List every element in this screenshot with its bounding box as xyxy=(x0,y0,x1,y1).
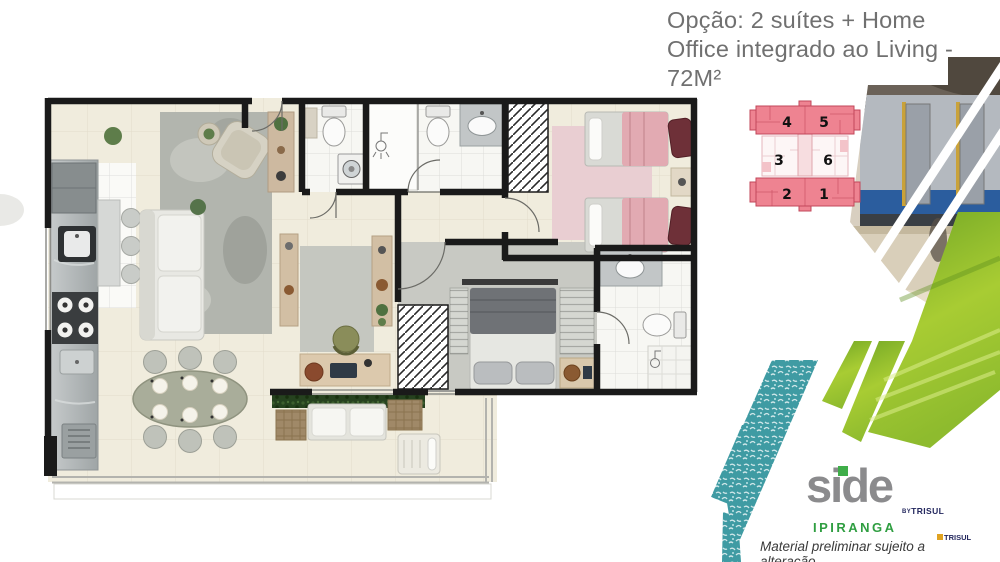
disclaimer-text: Material preliminar sujeito a alteração xyxy=(760,539,982,562)
side-logo-text: side xyxy=(806,459,892,512)
woven-mat xyxy=(388,400,422,430)
balcony-bench xyxy=(308,404,386,440)
wardrobe-left xyxy=(450,288,468,354)
wardrobe-hatched xyxy=(508,100,548,192)
toilet xyxy=(426,106,450,146)
side-table xyxy=(198,123,220,145)
keyplan-unit-1: 1 xyxy=(819,187,829,203)
keyplan-bottom-slab xyxy=(750,178,860,211)
peninsula-counter xyxy=(98,200,120,286)
dining-area xyxy=(133,347,247,453)
woven-mat xyxy=(276,410,306,440)
kitchen-sink xyxy=(58,226,96,262)
pool-water-texture xyxy=(711,360,818,562)
keyplan-unit-4: 4 xyxy=(782,115,792,131)
prep-sink xyxy=(60,350,94,374)
title-line-2: Office integrado ao Living - xyxy=(667,35,967,64)
sofa xyxy=(140,199,206,340)
lounger xyxy=(398,434,440,474)
keyplan-unit-5: 5 xyxy=(819,115,829,131)
title-line-3: 72M² xyxy=(667,64,967,93)
keyplan-top-slab xyxy=(750,101,860,134)
shower xyxy=(648,346,692,390)
vent-grill xyxy=(62,424,96,458)
desk-lamp xyxy=(364,359,372,367)
keyplan-unit-2: 2 xyxy=(782,187,792,203)
closet-hatched xyxy=(398,305,448,389)
floor-plan xyxy=(0,98,697,499)
toilet xyxy=(643,312,686,338)
nightstand xyxy=(671,168,693,196)
wall-stub xyxy=(44,436,57,476)
title-line-1: Opção: 2 suítes + Home xyxy=(667,6,967,35)
washing-machine xyxy=(338,154,365,184)
double-bed xyxy=(470,288,556,390)
keyplan-unit-3: 3 xyxy=(774,153,784,169)
bedroom-console xyxy=(560,358,596,388)
tv-panel xyxy=(462,279,558,285)
bar-stools xyxy=(122,209,141,284)
toilet xyxy=(322,106,346,146)
keyplan-unit-6: 6 xyxy=(823,153,833,169)
desk-stool xyxy=(305,363,323,381)
logo-green-square-icon xyxy=(838,466,848,476)
ipiranga-label: IPIRANGA xyxy=(813,520,897,535)
keyplan: 4 5 3 6 2 1 xyxy=(750,101,860,211)
plant xyxy=(190,199,206,215)
twin-bed-1 xyxy=(585,112,668,166)
cooktop xyxy=(52,292,98,344)
office-chair xyxy=(333,326,359,354)
vanity xyxy=(460,104,504,146)
page-title: Opção: 2 suítes + Home Office integrado … xyxy=(667,6,967,93)
terrace-lip xyxy=(54,484,491,499)
laptop xyxy=(330,363,357,378)
shelf xyxy=(305,108,317,138)
slide: 4 5 3 6 2 1 xyxy=(0,0,1000,562)
wardrobe-right xyxy=(560,288,594,354)
plant xyxy=(104,127,122,145)
twin-bed-2 xyxy=(585,198,668,252)
by-trisul-label: BYTRISUL xyxy=(902,506,944,516)
side-logo: side xyxy=(806,462,892,509)
logo-block: side BYTRISUL IPIRANGA xyxy=(806,462,986,509)
